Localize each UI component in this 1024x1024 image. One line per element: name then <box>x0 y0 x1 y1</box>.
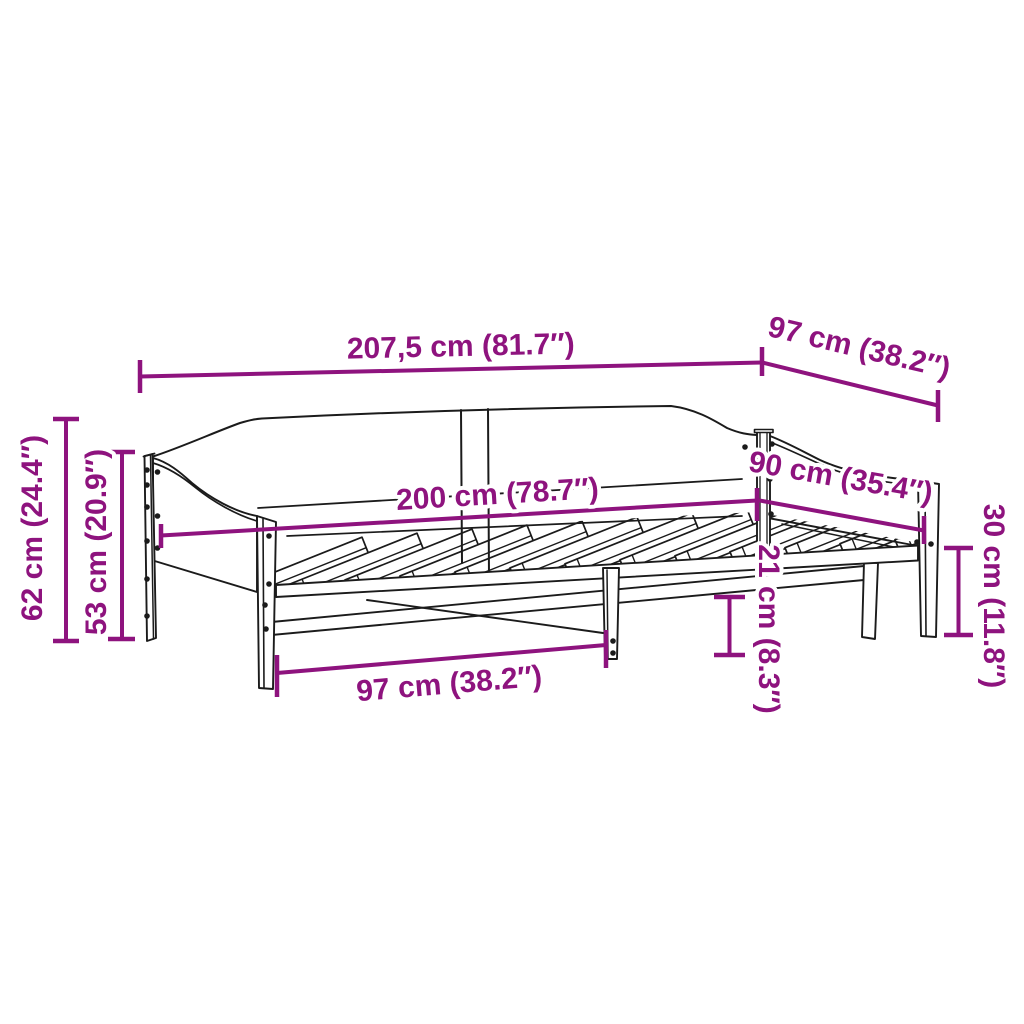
svg-text:207,5 cm (81.7″): 207,5 cm (81.7″) <box>347 327 576 365</box>
svg-text:62 cm (24.4″): 62 cm (24.4″) <box>16 435 49 621</box>
svg-text:21 cm (8.3″): 21 cm (8.3″) <box>752 544 785 713</box>
svg-text:53 cm (20.9″): 53 cm (20.9″) <box>80 449 113 635</box>
svg-text:30 cm (11.8″): 30 cm (11.8″) <box>977 504 1010 688</box>
